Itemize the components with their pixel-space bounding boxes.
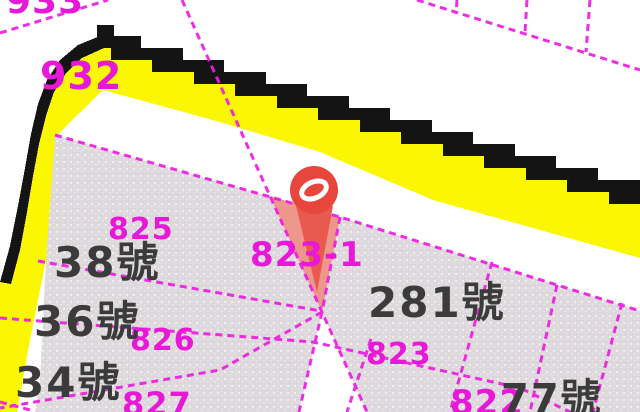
- house-number-281: 281號: [368, 282, 506, 324]
- cadastral-map[interactable]: 933 932 825 823-1 826 827 823 822 38號 36…: [0, 0, 640, 412]
- house-number-36: 36號: [34, 301, 140, 343]
- house-number-34: 34號: [15, 362, 121, 404]
- parcel-label-823: 823: [366, 340, 432, 370]
- parcel-label-932: 932: [40, 57, 122, 95]
- parcel-label-823-1: 823-1: [250, 238, 364, 272]
- house-number-38: 38號: [54, 242, 160, 284]
- parcel-label-827: 827: [122, 388, 192, 412]
- parcel-label-933: 933: [6, 0, 84, 20]
- house-number-77: 77號: [501, 379, 603, 412]
